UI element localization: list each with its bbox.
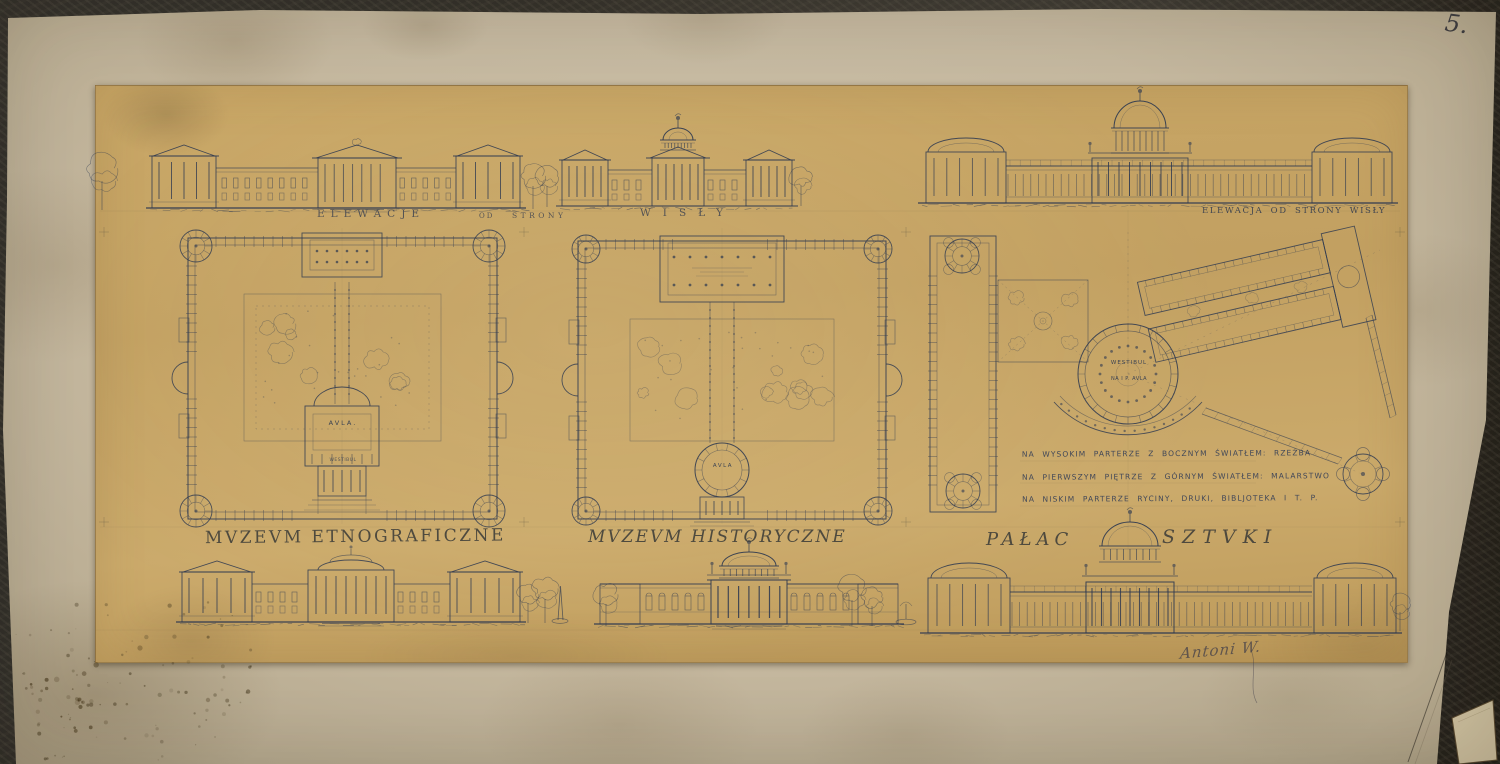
sheet-number: 5. (1443, 9, 1469, 40)
caption-elevations-word-2: OD (479, 212, 494, 220)
plan-label-aula-left: AVLA. (318, 419, 368, 427)
title-historical-museum: MVZEVM HISTORYCZNE (588, 527, 840, 547)
note-line-2: NA PIERWSZYM PIĘTRZE Z GÓRNYM ŚWIATŁEM: … (1022, 465, 1330, 489)
photographed-architectural-drawing: ELEWACJE OD STRONY WISŁY ELEWACJA OD STR… (0, 0, 1500, 764)
caption-elevations-word-3: STRONY (512, 211, 566, 220)
title-ethnographic-museum: MVZEVM ETNOGRAFICZNE (205, 526, 473, 548)
plan-label-vestibule-left: WESTIBUL (314, 458, 372, 463)
caption-right-elevation: ELEWACJA OD STRONY WISŁY (1202, 206, 1386, 216)
title-palace-of-art-word-1: PAŁAC (986, 529, 1073, 550)
drawing-panel (95, 85, 1408, 663)
note-line-3: NA NISKIM PARTERZE RYCINY, DRUKI, BIBLJO… (1022, 487, 1330, 511)
caption-elevations-word-1: ELEWACJE (317, 208, 425, 220)
title-palace-of-art-word-2: SZTVKI (1162, 526, 1278, 548)
plan-label-upper-aula-rotunda: NA I P. AVLA (1090, 376, 1168, 382)
plan-label-aula-middle: AVLA (700, 463, 746, 469)
note-line-1: NA WYSOKIM PARTERZE Z BOCZNYM ŚWIATŁEM: … (1022, 442, 1330, 466)
caption-elevations-word-4: WISŁY (640, 207, 735, 219)
program-notes: NA WYSOKIM PARTERZE Z BOCZNYM ŚWIATŁEM: … (1022, 442, 1330, 511)
plan-label-vestibule-rotunda: WESTIBUL (1098, 360, 1160, 366)
